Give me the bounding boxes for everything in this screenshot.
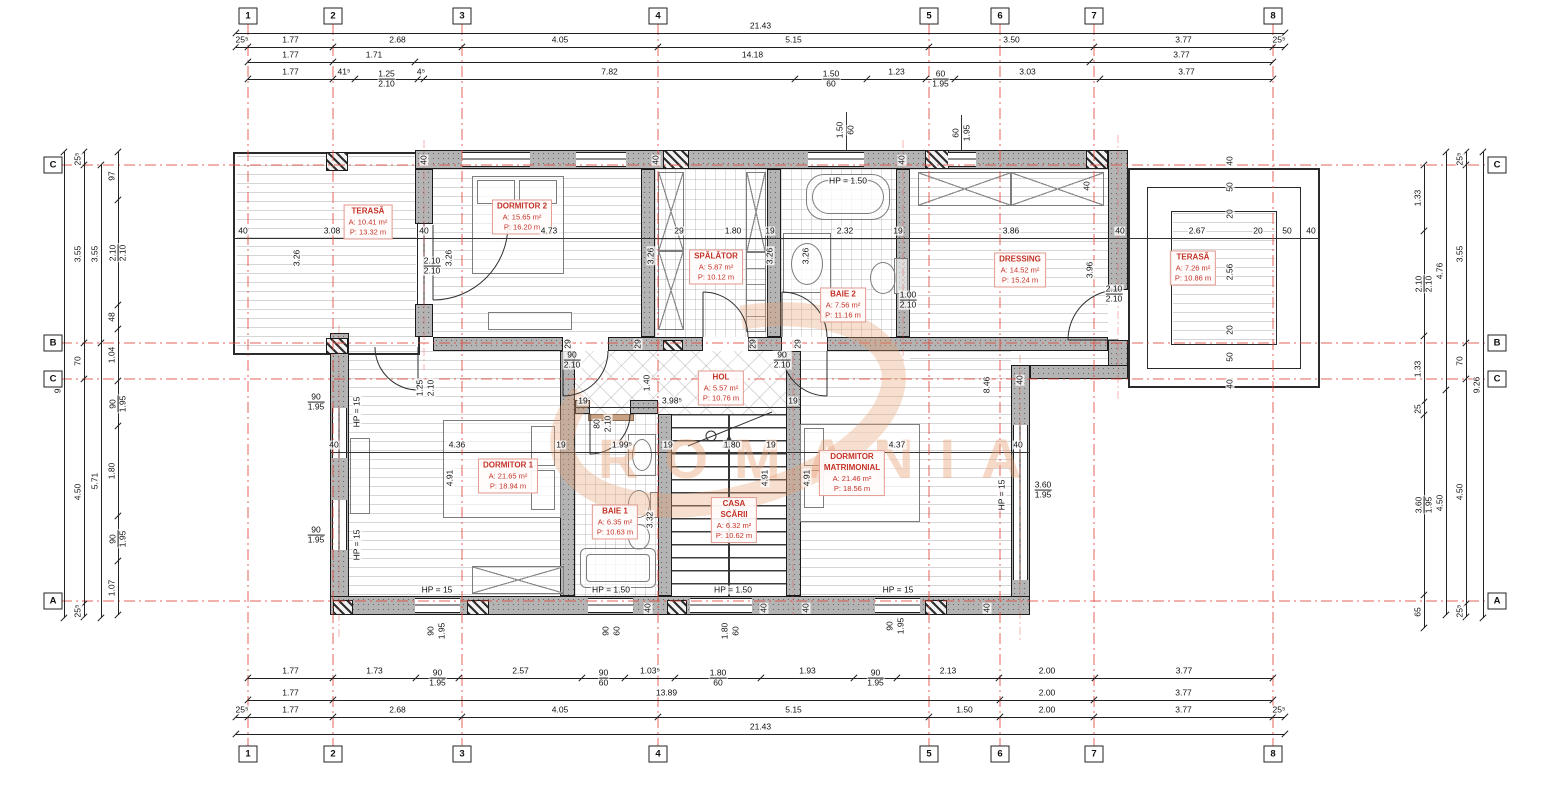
dim-label: 40: [1114, 227, 1125, 236]
dim-label: 1.93: [798, 667, 817, 676]
dim-label: 40: [420, 154, 429, 165]
dim-label: 901.95: [866, 669, 885, 688]
window: [332, 500, 347, 550]
dim-label: 4.36: [448, 441, 467, 450]
terrace-outline: [233, 152, 420, 355]
dimension-line: [236, 717, 1285, 718]
hatched-column: [925, 600, 947, 615]
wardrobe: [658, 251, 684, 330]
grid-bubble: 5: [920, 8, 939, 25]
dim-label: 1.40: [643, 374, 652, 393]
room-label: SPĂLĂTORA: 5.87 m²P: 10.12 m: [689, 249, 743, 284]
dim-label: 4⁵: [416, 68, 426, 77]
dim-label: 2.68: [388, 36, 407, 45]
window: [808, 152, 864, 167]
wall: [786, 351, 801, 596]
hatched-column: [667, 600, 687, 615]
dim-label: 7.82: [600, 68, 619, 77]
dim-label: HP = 1.50: [713, 586, 753, 595]
dim-label: 1.99⁵: [611, 441, 633, 450]
dim-label: 601.95: [931, 70, 950, 89]
dim-label: 25⁵: [235, 36, 250, 45]
dim-label: 3.96: [1086, 261, 1095, 280]
dim-label: 3.26: [647, 247, 656, 266]
dim-label: 2.13: [939, 667, 958, 676]
grid-bubble: 6: [991, 746, 1010, 763]
hatched-column: [1086, 150, 1108, 169]
dim-label: 13.89: [655, 689, 678, 698]
hatched-column: [326, 338, 348, 354]
dim-label: 1.95: [897, 617, 906, 636]
dim-label: 14.18: [741, 51, 764, 60]
dim-label: 1.50: [955, 706, 974, 715]
dim-label: 21.43: [749, 22, 772, 31]
dim-label: 9060: [598, 669, 609, 688]
dimension-line: [236, 47, 1285, 48]
dim-label: 2.102.10: [423, 257, 442, 276]
dim-label: HP = 15: [421, 586, 454, 595]
dim-label: 25⁵: [1272, 706, 1287, 715]
dim-label: 1.25: [416, 379, 425, 398]
dim-label: 3.26: [445, 249, 454, 268]
dim-label: 40: [1012, 441, 1023, 450]
dim-label: 20: [1226, 208, 1235, 219]
dim-label: 2.10: [604, 415, 613, 434]
dim-label: 1.80: [721, 622, 730, 641]
dim-label: 2.67: [1188, 227, 1207, 236]
dim-label: 3.601.95: [1034, 481, 1053, 500]
dimension-line: [101, 165, 102, 618]
dim-label: 2.102.10: [1415, 274, 1434, 293]
dim-label: 40: [328, 441, 339, 450]
dim-label: 65: [1414, 606, 1423, 617]
dim-label: 1.73: [365, 667, 384, 676]
dim-label: 1.80: [724, 227, 743, 236]
dim-label: 4.50: [1436, 493, 1445, 512]
window: [948, 152, 976, 167]
room-label: CASA SCĂRIIA: 6.32 m²P: 10.62 m: [711, 497, 757, 543]
room-label: HOLA: 5.57 m²P: 10.76 m: [698, 370, 744, 405]
dimension-line: [1466, 152, 1467, 617]
grid-bubble: 1: [239, 8, 258, 25]
dim-label: 2.57: [511, 667, 530, 676]
dimension-line: [575, 407, 800, 408]
dim-label: 3.77: [1177, 68, 1196, 77]
dim-label: 60: [613, 625, 622, 636]
dim-label: 25⁵: [1456, 603, 1465, 618]
dim-label: HP = 1.50: [591, 586, 631, 595]
dim-label: 25⁵: [1456, 151, 1465, 166]
shelving: [746, 252, 766, 332]
dim-tick: [97, 614, 104, 621]
dresser: [350, 438, 370, 514]
dim-label: 1.95: [438, 622, 447, 641]
dim-label: HP = 15: [882, 586, 915, 595]
dim-tick: [114, 611, 121, 618]
dim-label: HP = 15: [998, 479, 1007, 512]
dim-label: 4.50: [74, 482, 83, 501]
bathtub-inner: [586, 554, 650, 582]
grid-bubble: 5: [920, 746, 939, 763]
dim-label: 2.102.10: [1105, 285, 1124, 304]
dim-label: 4.37: [888, 441, 907, 450]
wardrobe-dressing: [918, 172, 1011, 206]
room-label: TERASĂA: 10.41 m²P: 13.32 m: [344, 204, 393, 239]
dim-label: 2.32: [836, 227, 855, 236]
grid-bubble: 7: [1085, 8, 1104, 25]
dim-label: 29: [749, 338, 758, 349]
dim-label: 1.77: [281, 68, 300, 77]
dim-label: 4.05: [551, 36, 570, 45]
dim-tick: [1269, 58, 1276, 65]
window: [576, 152, 626, 167]
dim-label: 2.102.10: [109, 243, 128, 262]
grid-bubble: C: [1488, 157, 1507, 174]
dim-label: 901.95: [307, 393, 326, 412]
dim-label: 90: [427, 625, 436, 636]
dim-label: 3.55: [1456, 245, 1465, 264]
hatched-column: [467, 600, 489, 615]
dim-label: 1.002.10: [899, 291, 918, 310]
dim-label: 1.03⁵: [639, 667, 661, 676]
room-label: TERASĂA: 7.26 m²P: 10.86 m: [1170, 250, 1216, 285]
dim-label: 25⁵: [1272, 36, 1287, 45]
dim-label: 29: [673, 227, 684, 236]
dim-label: 40: [983, 602, 992, 613]
dim-label: 2.00: [1038, 706, 1057, 715]
dim-label: 8.46: [983, 376, 992, 395]
dim-label: 25⁵: [74, 151, 83, 166]
dim-label: 4.91: [803, 469, 812, 488]
dim-label: 40: [898, 154, 907, 165]
dim-label: 40: [1016, 374, 1025, 385]
dim-label: HP = 15: [353, 529, 362, 562]
dimension-line: [1424, 165, 1425, 628]
dim-label: 3.03: [1018, 68, 1037, 77]
dim-label: 40: [237, 227, 248, 236]
dim-label: 3.77: [1174, 706, 1193, 715]
window: [462, 152, 530, 167]
dim-label: 50: [1226, 351, 1235, 362]
dim-label: 19: [765, 441, 776, 450]
dim-label: 60: [732, 625, 741, 636]
dim-label: 901.95: [109, 529, 128, 548]
dresser: [488, 312, 572, 330]
dim-tick: [1479, 614, 1486, 621]
dim-label: 1.33: [1414, 360, 1423, 379]
dimension-line: [1446, 152, 1447, 615]
wall: [415, 304, 433, 337]
wall: [896, 169, 910, 337]
dim-label: 70: [74, 355, 83, 366]
dim-label: 41⁵: [337, 68, 352, 77]
dim-label: 80: [593, 418, 602, 429]
dim-label: 97: [108, 170, 117, 181]
dim-label: 3.55: [91, 245, 100, 264]
dim-label: 90: [602, 625, 611, 636]
dim-tick: [1269, 696, 1276, 703]
dim-label: HP = 1.50: [828, 177, 868, 186]
sink-baie-1: [632, 439, 652, 471]
dim-label: 25⁵: [74, 603, 83, 618]
dim-label: 1.8060: [709, 669, 728, 688]
room-label: DORMITOR 1A: 21.65 m²P: 18.94 m: [478, 458, 538, 493]
dim-tick: [60, 614, 67, 621]
dim-label: 1.5060: [822, 70, 841, 89]
dim-label: 29: [634, 338, 643, 349]
dim-label: 40: [1226, 378, 1235, 389]
dim-label: 3.77: [1172, 51, 1191, 60]
dim-label: 29: [564, 338, 573, 349]
dim-label: 48: [108, 311, 117, 322]
dim-label: 50: [1281, 227, 1292, 236]
dim-label: 1.77: [281, 706, 300, 715]
dimension-line: [1483, 152, 1484, 618]
dim-label: 2.56: [1226, 263, 1235, 282]
dimension-line: [236, 734, 1285, 735]
grid-bubble: A: [44, 593, 63, 610]
dimension-line: [84, 152, 85, 617]
dim-label: 3.08: [323, 227, 342, 236]
grid-bubble: 3: [453, 746, 472, 763]
grid-bubble: C: [44, 371, 63, 388]
dim-label: 902.10: [773, 351, 792, 370]
dim-label: 901.95: [307, 526, 326, 545]
dim-label: 901.95: [428, 669, 447, 688]
hatched-column: [663, 150, 689, 169]
wall: [415, 169, 433, 224]
dim-label: 901.95: [109, 394, 128, 413]
window: [415, 598, 460, 613]
grid-bubble: 2: [324, 8, 343, 25]
dim-label: 3.86: [1002, 227, 1021, 236]
dimension-line: [64, 152, 65, 618]
wall: [827, 337, 1108, 351]
dim-label: 19: [555, 441, 566, 450]
dim-label: 3.77: [1174, 36, 1193, 45]
dim-label: 19: [787, 397, 798, 406]
grid-bubble: C: [44, 157, 63, 174]
dimension-line: [248, 62, 1273, 63]
wall: [330, 333, 349, 615]
dim-label: 40: [644, 602, 653, 613]
dim-label: 4.73: [540, 227, 559, 236]
dim-tick: [1269, 674, 1276, 681]
dim-label: 4.50: [1456, 482, 1465, 501]
dim-label: 19: [662, 441, 673, 450]
dim-label: 2.00: [1038, 689, 1057, 698]
dim-tick: [1442, 611, 1449, 618]
dim-label: 3.32: [646, 511, 655, 530]
dim-label: 2.10: [427, 379, 436, 398]
grid-bubble: 4: [649, 8, 668, 25]
dim-label: 5.15: [784, 706, 803, 715]
dim-label: 1.252.10: [377, 70, 396, 89]
dim-tick: [1420, 624, 1427, 631]
dim-label: 4.76: [1436, 262, 1445, 281]
dim-label: 1.04: [108, 346, 117, 365]
dim-label: 25⁵: [235, 706, 250, 715]
dim-label: 20: [1226, 324, 1235, 335]
dim-label: 70: [1456, 355, 1465, 366]
dim-label: 25: [1414, 403, 1423, 414]
dim-label: 4.91: [761, 469, 770, 488]
wall: [560, 351, 575, 596]
dim-label: 90: [886, 620, 895, 631]
dim-label: 3.26: [766, 247, 775, 266]
dim-label: 4.05: [551, 706, 570, 715]
dim-label: 50: [1226, 181, 1235, 192]
window: [332, 408, 347, 458]
dim-label: 40: [652, 154, 661, 165]
dim-label: 60: [952, 127, 961, 138]
dim-label: 40: [1226, 155, 1235, 166]
dim-label: 1.77: [281, 36, 300, 45]
bench-chest: [472, 566, 564, 594]
dim-label: 2.00: [1038, 667, 1057, 676]
room-label: BAIE 1A: 6.35 m²P: 10.63 m: [592, 504, 638, 539]
dim-label: 1.23: [887, 68, 906, 77]
dim-label: 21.43: [749, 723, 772, 732]
room-label: DRESSINGA: 14.52 m²P: 15.24 m: [994, 252, 1046, 287]
dim-label: 3.601.95: [1415, 496, 1434, 515]
window: [875, 598, 920, 613]
dim-label: 1.50: [836, 121, 845, 140]
dim-label: 3.26: [293, 249, 302, 268]
dim-label: 1.77: [281, 689, 300, 698]
wall: [1030, 365, 1128, 379]
room-label: DORMITOR MATRIMONIALA: 21.46 m²P: 18.56 …: [819, 450, 885, 496]
dim-label: 40: [1305, 227, 1316, 236]
dim-label: 5.15: [784, 36, 803, 45]
grid-bubble: 3: [453, 8, 472, 25]
dim-label: 1.80: [108, 462, 117, 481]
grid-bubble: B: [44, 335, 63, 352]
dim-label: 20: [1252, 227, 1263, 236]
dimension-line: [248, 700, 1273, 701]
hatched-column: [333, 600, 353, 615]
dim-label: 1.07: [108, 579, 117, 598]
dim-label: 40: [1083, 180, 1092, 191]
grid-bubble: 2: [324, 746, 343, 763]
dimension-line: [233, 238, 1320, 239]
dimension-line: [330, 452, 1030, 453]
wardrobe: [658, 172, 684, 251]
dim-label: 1.77: [281, 51, 300, 60]
dim-label: 1.71: [365, 51, 384, 60]
dim-label: 1.77: [281, 667, 300, 676]
dim-label: 3.77: [1174, 689, 1193, 698]
dim-label: 40: [760, 602, 769, 613]
hatched-column: [326, 152, 348, 171]
dim-label: 3.98⁵: [661, 397, 683, 406]
dim-label: 1.95: [963, 124, 972, 143]
window: [588, 598, 633, 613]
dim-label: 29: [794, 338, 803, 349]
wardrobe: [746, 172, 766, 252]
grid-bubble: B: [1488, 335, 1507, 352]
hatched-column: [925, 150, 949, 169]
grid-bubble: C: [1488, 371, 1507, 388]
dim-label: 2.68: [388, 706, 407, 715]
dim-label: 902.10: [563, 351, 582, 370]
grid-bubble: 6: [991, 8, 1010, 25]
dim-label: 1.33: [1414, 189, 1423, 208]
dim-label: 9.26: [1473, 376, 1482, 395]
dim-label: 19: [892, 227, 903, 236]
room-label: BAIE 2A: 7.56 m²P: 11.16 m: [820, 287, 866, 322]
grid-bubble: 8: [1264, 8, 1283, 25]
wall: [433, 337, 563, 351]
dim-label: 4.91: [446, 469, 455, 488]
hatched-column: [663, 340, 683, 351]
dim-label: 40: [802, 602, 811, 613]
grid-bubble: 1: [239, 746, 258, 763]
dim-tick: [1281, 730, 1288, 737]
dim-label: HP = 15: [353, 396, 362, 429]
dim-label: 5.71: [91, 471, 100, 490]
dim-label: 60: [847, 124, 856, 135]
dim-label: 1.80: [723, 441, 742, 450]
grid-bubble: A: [1488, 593, 1507, 610]
floor-plan-canvas: ROMANIA 1122334455667788CCBBCCAA21.4325⁵…: [0, 0, 1553, 795]
grid-bubble: 8: [1264, 746, 1283, 763]
wall: [1108, 150, 1128, 290]
grid-bubble: 7: [1085, 746, 1104, 763]
window: [690, 598, 752, 613]
dim-label: 3.50: [1002, 36, 1021, 45]
grid-bubble: 4: [649, 746, 668, 763]
dim-label: 3.77: [1175, 667, 1194, 676]
dim-label: 3.55: [74, 245, 83, 264]
dim-label: 40: [418, 227, 429, 236]
dimension-line: [248, 79, 1273, 80]
dim-label: 19: [764, 227, 775, 236]
dim-label: 19: [577, 397, 588, 406]
dim-tick: [1269, 75, 1276, 82]
dim-label: 3.26: [802, 247, 811, 266]
wall: [608, 337, 703, 351]
toilet-baie-2: [870, 262, 896, 294]
